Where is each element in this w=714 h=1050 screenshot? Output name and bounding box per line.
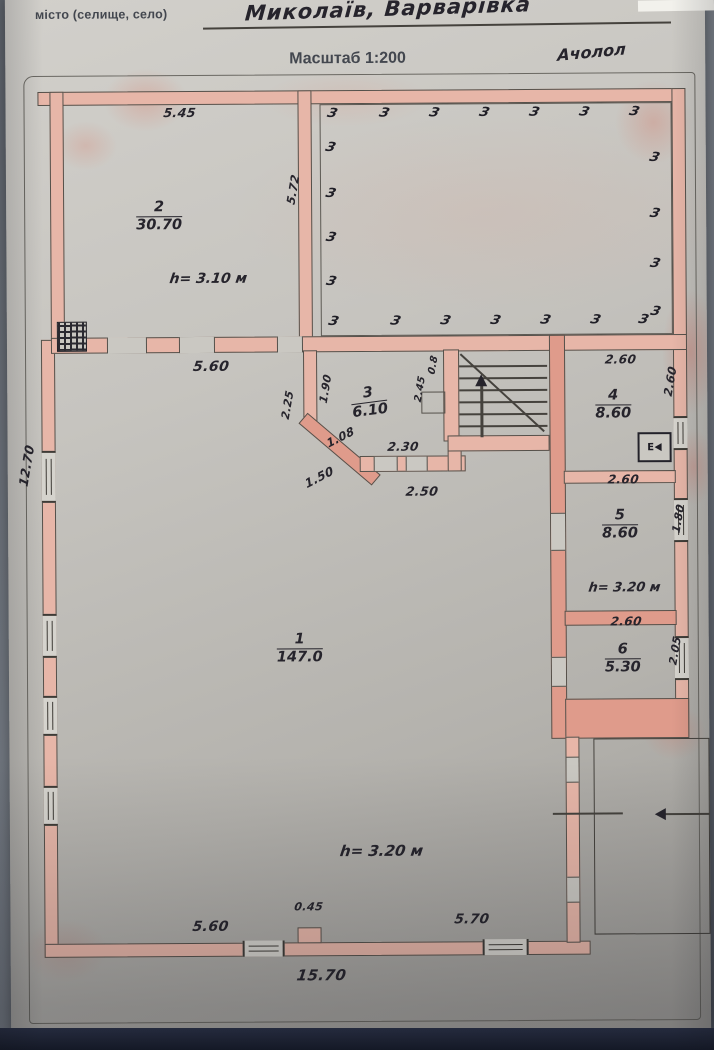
entrance-arrow [665, 813, 710, 815]
door-opening [406, 457, 428, 471]
dim-bottom-left: 5.60 [191, 919, 229, 935]
wall-left-upper [49, 92, 65, 348]
dim-bottom-total: 15.70 [296, 966, 348, 984]
photo-corner-paper [638, 0, 714, 12]
stairs-up-arrow [480, 385, 483, 437]
wall-bottom-ledge [298, 927, 322, 943]
room1-height-note: h= 3.20 м [339, 842, 424, 861]
porch-outline [593, 738, 710, 935]
wall-stairs-left [443, 349, 460, 441]
room-area: 147.0 [277, 649, 323, 667]
dim-bottom-right: 5.70 [453, 911, 490, 927]
wall-room6-bottom [565, 698, 689, 739]
door-opening [551, 513, 565, 551]
room5-label: 5 8.60 [602, 508, 638, 542]
window-icon [483, 939, 529, 955]
window-icon [43, 696, 57, 736]
room-number: 5 [602, 508, 638, 525]
room1-label: 1 147.0 [277, 632, 323, 666]
room-number: 4 [595, 388, 631, 405]
dim-bottom-ledge: 0.45 [294, 900, 324, 913]
stairs-up-arrow-head [475, 374, 487, 386]
window-icon [673, 416, 687, 450]
room5-height-note: h= 3.20 м [587, 580, 661, 595]
room-area: 8.60 [602, 525, 638, 543]
door-opening [567, 877, 579, 903]
window-icon [42, 451, 56, 503]
entrance-arrow-head [655, 808, 666, 820]
appliance-icon: Е [638, 432, 672, 462]
room3-label: 3 6.10 [349, 384, 389, 422]
window-icon [243, 940, 285, 956]
appliance-label: Е [647, 442, 654, 453]
dim-room3-door-span: 2.30 [387, 440, 420, 454]
window-icon [44, 786, 58, 826]
door-opening [107, 337, 147, 353]
door-opening [277, 336, 303, 352]
dim-room4-top: 2.60 [604, 352, 637, 366]
room-number: 2 [136, 200, 182, 217]
dim-room3-bottom: 2.50 [405, 484, 439, 499]
big-room-outline [319, 102, 672, 336]
header-note: Ачолол [557, 39, 626, 65]
dim-hall-width: 5.60 [192, 359, 230, 375]
room2-label: 2 30.70 [136, 200, 182, 234]
door-opening [374, 457, 398, 471]
room-area: 30.70 [136, 217, 182, 235]
chimney-icon [57, 322, 87, 352]
photo-bottom-edge [0, 1028, 714, 1050]
dim-room2-top: 5.45 [163, 105, 197, 120]
dim-room5-top: 2.60 [607, 472, 640, 486]
room6-label: 6 5.30 [605, 642, 641, 676]
door-opening [566, 757, 578, 783]
city-field-value: Миколаїв, Варварівка [244, 0, 532, 25]
room-area: 5.30 [605, 659, 641, 677]
room-area: 8.60 [595, 405, 631, 423]
city-field-label: місто (селище, село) [35, 7, 167, 22]
door-opening [552, 657, 566, 687]
wall-stairs-bottom [448, 435, 550, 452]
scale-label: Масштаб 1:200 [289, 50, 406, 69]
appliance-triangle-icon [655, 443, 662, 451]
window-icon [43, 614, 57, 658]
dim-room6-top: 2.60 [610, 614, 643, 628]
wall-room2-right [297, 90, 313, 350]
room-number: 1 [277, 632, 323, 649]
room4-label: 4 8.60 [595, 388, 631, 422]
door-opening [179, 337, 215, 353]
room2-height-note: h= 3.10 м [168, 271, 248, 287]
wall-room3-left [303, 350, 317, 422]
scanned-paper: місто (селище, село) Миколаїв, Варварівк… [5, 0, 711, 1036]
room-number: 6 [605, 642, 641, 659]
